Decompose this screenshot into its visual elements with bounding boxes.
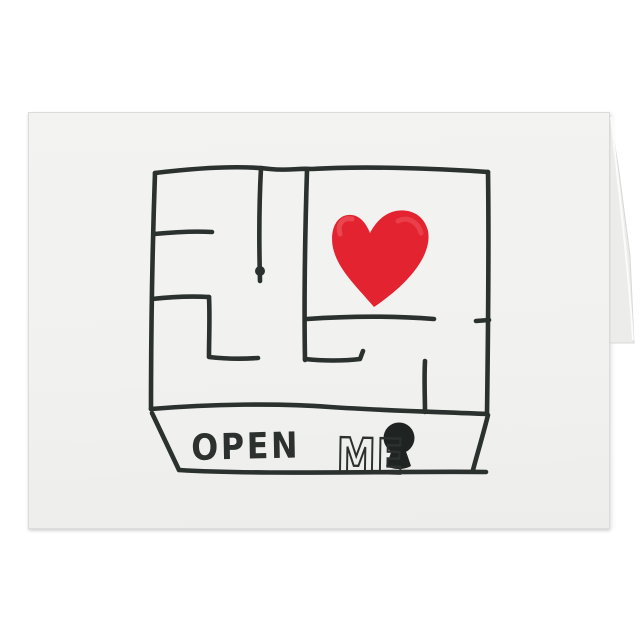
product-photo: OPEN ME: [0, 0, 644, 644]
me-text: ME: [336, 432, 405, 482]
open-text: OPEN: [191, 428, 301, 467]
card-fold-crease: [611, 117, 633, 340]
card-back-fold: [610, 115, 634, 343]
card-back-fold-wedge: [610, 115, 634, 343]
banner-text: OPEN ME: [191, 431, 419, 480]
